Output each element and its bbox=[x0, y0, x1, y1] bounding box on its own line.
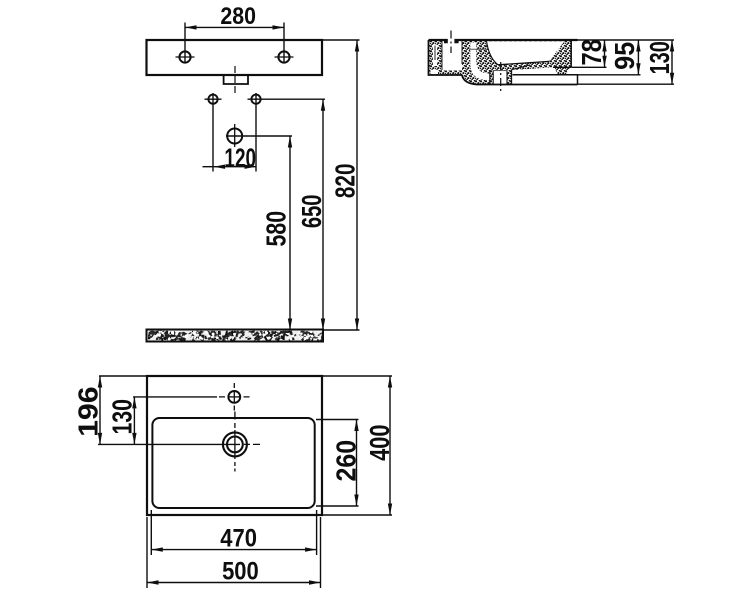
svg-text:260: 260 bbox=[330, 440, 362, 482]
svg-text:95: 95 bbox=[609, 42, 641, 70]
svg-text:580: 580 bbox=[261, 211, 293, 246]
svg-text:120: 120 bbox=[224, 143, 256, 173]
svg-text:130: 130 bbox=[107, 399, 139, 434]
svg-text:470: 470 bbox=[220, 524, 257, 552]
svg-text:130: 130 bbox=[645, 41, 676, 74]
svg-text:650: 650 bbox=[297, 194, 328, 228]
svg-text:196: 196 bbox=[74, 386, 105, 436]
svg-text:78: 78 bbox=[575, 39, 607, 65]
svg-text:820: 820 bbox=[331, 164, 362, 199]
svg-text:400: 400 bbox=[365, 424, 396, 460]
svg-text:280: 280 bbox=[220, 2, 256, 30]
svg-text:500: 500 bbox=[222, 557, 259, 585]
